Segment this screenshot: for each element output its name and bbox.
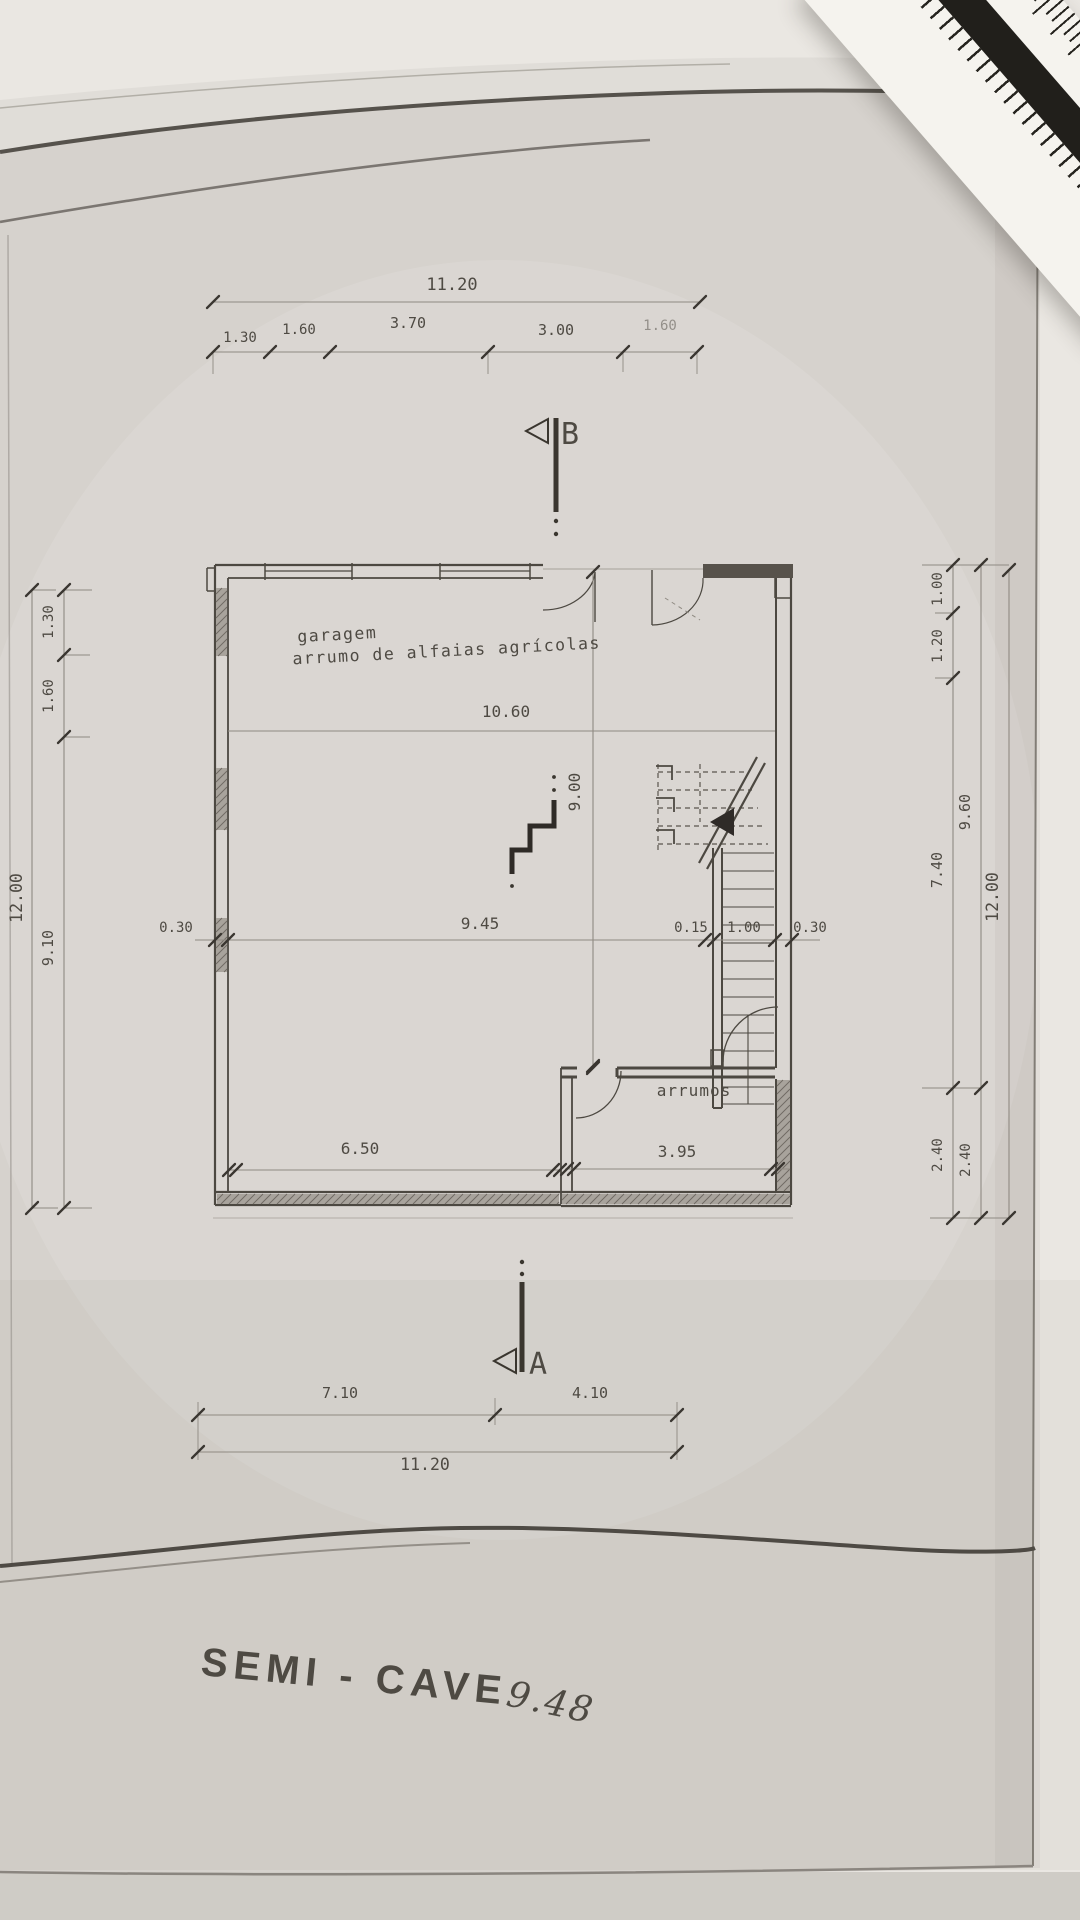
dim-right-seg4: 2.40 xyxy=(930,1138,946,1172)
photographed-floor-plan-sheet: 11.20 1.30 1.60 3.70 3.00 1.60 B A garag… xyxy=(0,0,1080,1920)
dim-row-stair: 1.00 xyxy=(727,920,761,936)
storage-room-label: arrumos xyxy=(657,1081,731,1100)
dim-left-seg3: 9.10 xyxy=(39,930,57,966)
section-label-B: B xyxy=(561,417,579,452)
dim-right-mid1: 9.60 xyxy=(956,794,974,830)
dim-inner-width: 10.60 xyxy=(482,702,530,721)
dim-right-seg2: 1.20 xyxy=(930,629,946,663)
dim-right-mid2: 2.40 xyxy=(958,1143,974,1177)
dim-left-seg2: 1.60 xyxy=(41,679,57,713)
dim-top-total: 11.20 xyxy=(426,275,477,295)
dim-top-seg2: 1.60 xyxy=(282,322,316,338)
dim-top-seg1: 1.30 xyxy=(223,330,257,346)
dim-storage-width: 3.95 xyxy=(658,1142,697,1161)
dim-right-seg3: 7.40 xyxy=(928,852,946,888)
floor-plan-drawing: 11.20 1.30 1.60 3.70 3.00 1.60 B A garag… xyxy=(0,0,1080,1920)
dim-top-seg5: 1.60 xyxy=(643,318,677,334)
dim-right-total: 12.00 xyxy=(983,872,1002,922)
dim-left-seg1: 1.30 xyxy=(41,605,57,639)
dim-row-span: 9.45 xyxy=(461,914,500,933)
dim-top-seg4: 3.00 xyxy=(538,321,574,339)
dim-top-seg3: 3.70 xyxy=(390,314,426,332)
dim-bottom-seg1: 7.10 xyxy=(322,1384,358,1402)
dim-bottom-seg2: 4.10 xyxy=(572,1384,608,1402)
paper-sheet xyxy=(0,0,1080,1920)
dim-bottom-total: 11.20 xyxy=(400,1455,450,1474)
dim-left-total: 12.00 xyxy=(7,873,26,923)
dim-row-right-wall: 0.30 xyxy=(793,920,827,936)
dim-row-left-wall: 0.30 xyxy=(159,920,193,936)
dim-garage-width: 6.50 xyxy=(341,1139,380,1158)
dim-row-step: 0.15 xyxy=(674,920,708,936)
dim-right-seg1: 1.00 xyxy=(930,572,946,606)
dim-inner-height: 9.00 xyxy=(565,773,584,812)
section-label-A: A xyxy=(529,1347,547,1382)
